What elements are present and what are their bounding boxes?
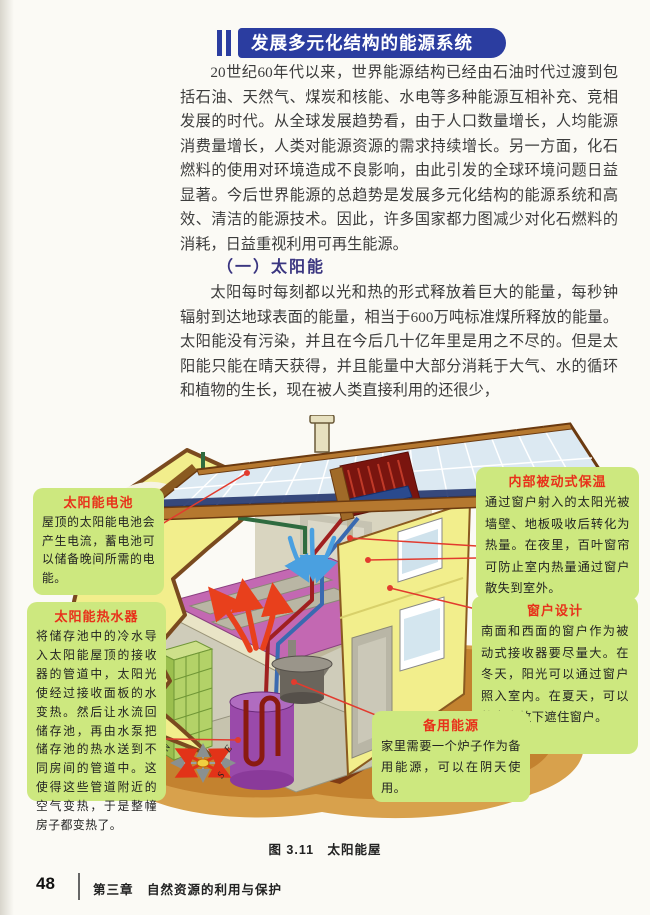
- callout-backup-energy: 备用能源 家里需要一个炉子作为备用能源，可以在阴天使用。: [372, 711, 530, 802]
- callout-title: 太阳能热水器: [36, 608, 157, 625]
- chimney: [310, 415, 334, 452]
- callout-title: 内部被动式保温: [485, 473, 630, 490]
- callout-body: 家里需要一个炉子作为备用能源，可以在阴天使用。: [381, 736, 521, 799]
- body-paragraph-1: 20世纪60年代以来，世界能源结构已经由石油时代过渡到包括石油、天然气、煤炭和核…: [180, 61, 618, 257]
- callout-solar-battery: 太阳能电池 屋顶的太阳能电池会产生电流，蓄电池可以储备晚间所需的电能。: [33, 488, 164, 595]
- section-banner-title: 发展多元化结构的能源系统: [238, 28, 506, 58]
- callout-passive-insulation: 内部被动式保温 通过窗户射入的太阳光被墙壁、地板吸收后转化为热量。在夜里，百叶窗…: [476, 467, 639, 600]
- textbook-page: { "header": { "title": "发展多元化结构的能源系统" },…: [0, 0, 650, 915]
- figure-caption: 图 3.11 太阳能屋: [0, 839, 650, 858]
- callout-title: 窗户设计: [481, 602, 629, 619]
- banner-bar-icon: [217, 30, 222, 56]
- callout-solar-water-heater: 太阳能热水器 将储存池中的冷水导入太阳能屋顶的接收器的管道中，太阳光使经过接收面…: [27, 602, 166, 801]
- callout-body: 屋顶的太阳能电池会产生电流，蓄电池可以储备晚间所需的电能。: [42, 513, 155, 587]
- footer-divider: [78, 873, 80, 900]
- callout-body: 通过窗户射入的太阳光被墙壁、地板吸收后转化为热量。在夜里，百叶窗帘可防止室内热量…: [485, 492, 630, 600]
- page-number: 48: [36, 874, 55, 894]
- body-paragraph-2: 太阳每时每刻都以光和热的形式释放着巨大的能量，每秒钟辐射到达地球表面的能量，相当…: [180, 281, 618, 404]
- callout-title: 备用能源: [381, 717, 521, 734]
- chapter-footer: 第三章 自然资源的利用与保护: [93, 879, 282, 898]
- banner-bar-icon: [226, 30, 231, 56]
- callout-body: 将储存池中的冷水导入太阳能屋顶的接收器的管道中，太阳光使经过接收面板的水变热。然…: [36, 627, 157, 835]
- callout-title: 太阳能电池: [42, 494, 155, 511]
- subsection-heading: （一）太阳能: [217, 253, 325, 277]
